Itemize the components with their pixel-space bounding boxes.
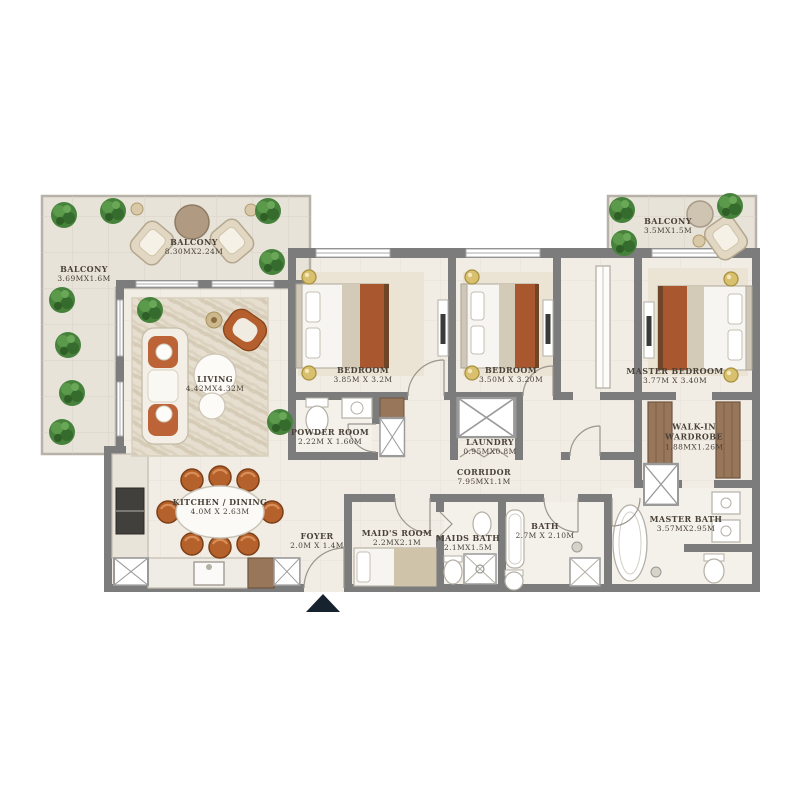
toilet bbox=[505, 572, 523, 590]
sink bbox=[473, 512, 491, 536]
sofa bbox=[142, 328, 188, 444]
tv-unit-bedroom1 bbox=[438, 300, 448, 356]
entrance-marker-icon bbox=[306, 594, 340, 612]
wardrobe-cabinet bbox=[596, 266, 610, 388]
plant bbox=[137, 297, 163, 323]
toilet bbox=[444, 560, 462, 584]
closet-cabinet bbox=[380, 398, 404, 418]
floor-plan-graphics bbox=[0, 0, 800, 800]
bed-bedroom1 bbox=[296, 270, 389, 380]
toilet bbox=[306, 406, 328, 434]
tv-unit-master bbox=[644, 302, 654, 358]
bed-maids-room bbox=[354, 548, 436, 586]
floor-plan: BALCONY 8.30MX2.24M BALCONY 3.69MX1.6M B… bbox=[0, 0, 800, 800]
candle-tray bbox=[206, 312, 222, 328]
sink bbox=[712, 520, 740, 542]
bed-bedroom2 bbox=[461, 270, 539, 380]
sink bbox=[342, 398, 372, 418]
round-table bbox=[687, 201, 713, 227]
round-table bbox=[175, 205, 209, 239]
freestanding-tub bbox=[613, 505, 647, 581]
bed-master bbox=[658, 272, 752, 382]
plant bbox=[267, 409, 293, 435]
toilet bbox=[704, 559, 724, 583]
sink bbox=[712, 492, 740, 514]
tv-unit-bedroom2 bbox=[543, 300, 553, 356]
wood-cabinet bbox=[248, 558, 274, 588]
